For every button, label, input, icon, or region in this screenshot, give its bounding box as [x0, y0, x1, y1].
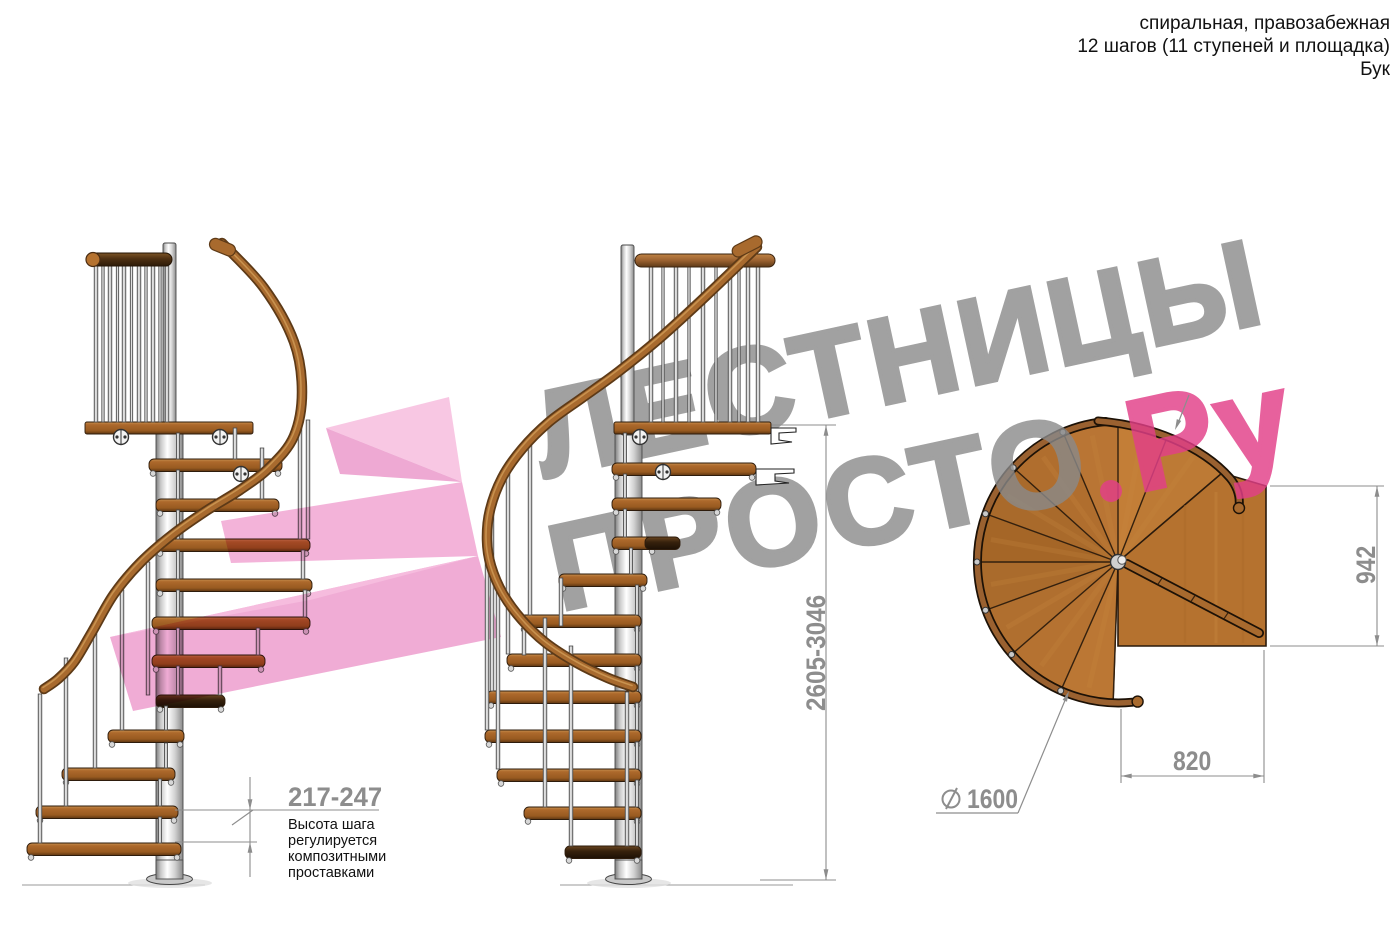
svg-text:Высота шага: Высота шага: [288, 817, 375, 833]
svg-text:композитными: композитными: [288, 849, 386, 865]
svg-text:2605-3046: 2605-3046: [802, 595, 831, 711]
svg-text:спиральная, правозабежная: спиральная, правозабежная: [1140, 13, 1390, 34]
svg-text:регулируется: регулируется: [288, 833, 377, 849]
svg-text:820: 820: [1173, 746, 1211, 776]
svg-text:1600: 1600: [967, 784, 1018, 814]
svg-text:Бук: Бук: [1360, 59, 1391, 80]
svg-text:проставками: проставками: [288, 865, 374, 881]
svg-text:12 шагов (11 ступеней и площад: 12 шагов (11 ступеней и площадка): [1077, 36, 1390, 57]
svg-text:217-247: 217-247: [288, 781, 382, 812]
svg-text:942: 942: [1351, 546, 1381, 584]
